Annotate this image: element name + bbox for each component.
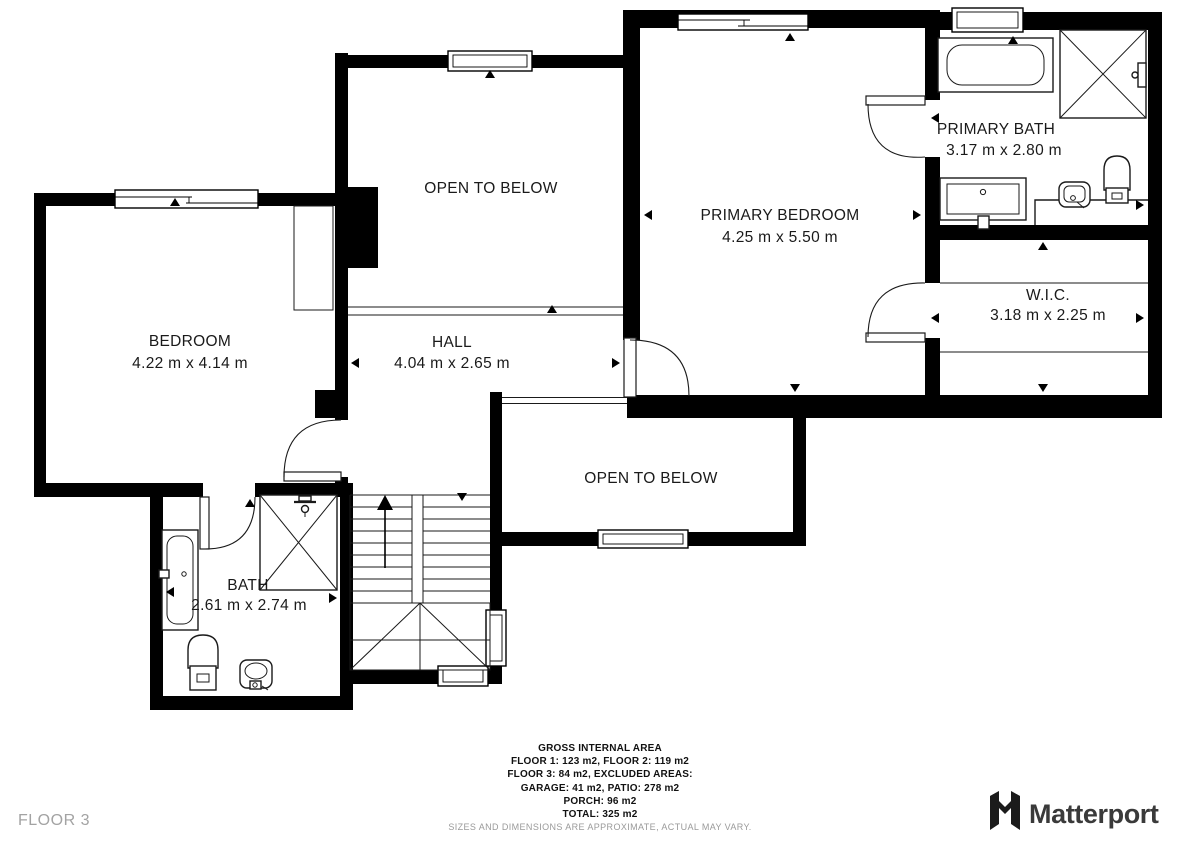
wic-door	[866, 283, 925, 342]
bedroom-closet	[294, 206, 333, 310]
bathtub	[159, 530, 198, 630]
toilet	[1104, 156, 1130, 203]
bedroom-window	[115, 190, 258, 208]
stairs	[350, 495, 490, 670]
primary-bedroom-window	[678, 14, 808, 30]
area-summary-line: GARAGE: 41 m2, PATIO: 278 m2	[0, 782, 1200, 795]
hall-door	[624, 338, 689, 397]
room-label-primary-bath: PRIMARY BATH	[937, 121, 1055, 138]
floor-plan-canvas: BEDROOM 4.22 m x 4.14 m OPEN TO BELOW HA…	[0, 0, 1200, 848]
room-label-hall: HALL	[432, 334, 472, 351]
room-dims-wic: 3.18 m x 2.25 m	[990, 307, 1106, 324]
bedroom-door	[284, 420, 341, 481]
room-dims-hall: 4.04 m x 2.65 m	[394, 355, 510, 372]
disclaimer: SIZES AND DIMENSIONS ARE APPROXIMATE, AC…	[0, 821, 1200, 834]
room-dims-bedroom: 4.22 m x 4.14 m	[132, 355, 248, 372]
room-dims-primary-bedroom: 4.25 m x 5.50 m	[722, 229, 838, 246]
floor-plan-page: BEDROOM 4.22 m x 4.14 m OPEN TO BELOW HA…	[0, 0, 1200, 848]
room-dims-bath: 2.61 m x 2.74 m	[191, 597, 307, 614]
shower	[1060, 30, 1146, 118]
room-label-open-to-below-mid: OPEN TO BELOW	[584, 470, 717, 487]
primary-bath-door	[866, 96, 925, 157]
room-label-bath: BATH	[227, 577, 268, 594]
vanity-sink	[940, 178, 1026, 229]
counter	[1035, 200, 1148, 225]
open-below-mid-window	[598, 530, 688, 548]
toilet	[188, 635, 218, 690]
area-summary-title: GROSS INTERNAL AREA	[0, 742, 1200, 755]
area-summary-line: FLOOR 1: 123 m2, FLOOR 2: 119 m2	[0, 755, 1200, 768]
railings	[348, 307, 627, 495]
area-summary: GROSS INTERNAL AREA FLOOR 1: 123 m2, FLO…	[0, 742, 1200, 834]
area-summary-line: PORCH: 96 m2	[0, 795, 1200, 808]
open-below-top-window	[448, 51, 532, 71]
area-summary-line: TOTAL: 325 m2	[0, 808, 1200, 821]
bidet	[1059, 182, 1090, 208]
room-label-wic: W.I.C.	[1026, 287, 1070, 304]
room-label-primary-bedroom: PRIMARY BEDROOM	[701, 207, 860, 224]
shower	[260, 495, 337, 590]
primary-bath-window	[952, 8, 1023, 32]
stair-side-window	[486, 610, 506, 666]
room-dims-primary-bath: 3.17 m x 2.80 m	[946, 142, 1062, 159]
stair-bottom-window	[438, 666, 488, 686]
sink	[240, 660, 272, 690]
room-label-open-to-below-top: OPEN TO BELOW	[424, 180, 557, 197]
doors	[200, 96, 925, 549]
room-label-bedroom: BEDROOM	[149, 333, 231, 350]
area-summary-line: FLOOR 3: 84 m2, EXCLUDED AREAS:	[0, 768, 1200, 781]
bathtub	[938, 38, 1053, 92]
